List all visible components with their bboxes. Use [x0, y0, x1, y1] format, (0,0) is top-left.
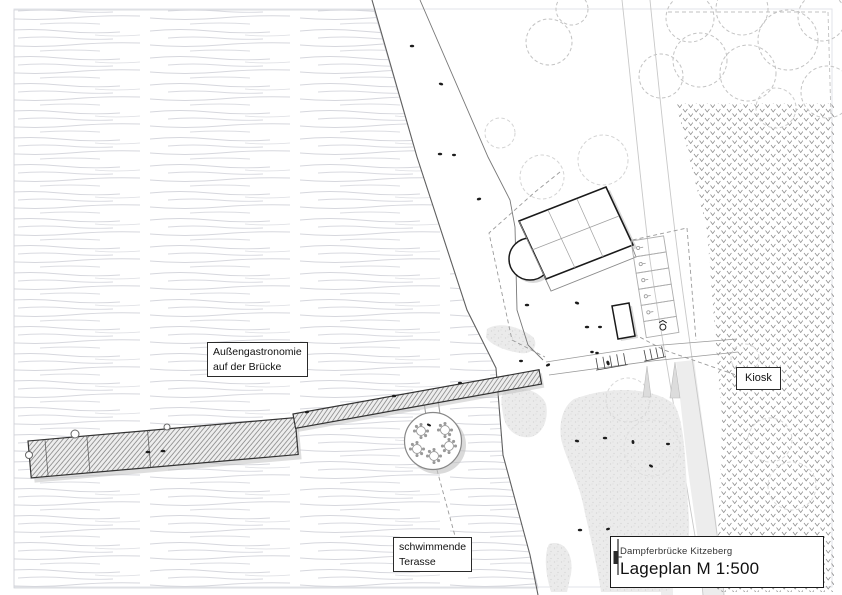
wheelchair-icon — [659, 320, 668, 331]
water-area — [14, 10, 538, 588]
site-plan-drawing — [0, 0, 842, 595]
main-building — [509, 187, 637, 291]
site-plan-canvas: Außengastronomie auf der Brücke schwimme… — [0, 0, 842, 595]
label-kiosk-text: Kiosk — [745, 371, 772, 386]
label-floating-terrace-line2: Terasse — [399, 555, 466, 570]
project-name: Dampferbrücke Kitzeberg — [620, 546, 759, 557]
pier-plan-icon — [611, 537, 625, 577]
label-outdoor-gastronomy-line1: Außengastronomie — [213, 345, 302, 360]
label-kiosk: Kiosk — [736, 367, 781, 390]
label-floating-terrace: schwimmende Terasse — [393, 537, 472, 572]
kiosk-building — [612, 303, 638, 341]
conifer-trees — [643, 362, 680, 398]
title-block: Dampferbrücke Kitzeberg Lageplan M 1:500 — [610, 536, 824, 588]
label-outdoor-gastronomy-line2: auf der Brücke — [213, 360, 302, 375]
label-floating-terrace-line1: schwimmende — [399, 540, 466, 555]
parking-stalls — [631, 236, 679, 338]
label-outdoor-gastronomy: Außengastronomie auf der Brücke — [207, 342, 308, 377]
title-block-text: Dampferbrücke Kitzeberg Lageplan M 1:500 — [620, 546, 759, 579]
sheet-title: Lageplan M 1:500 — [620, 559, 759, 579]
